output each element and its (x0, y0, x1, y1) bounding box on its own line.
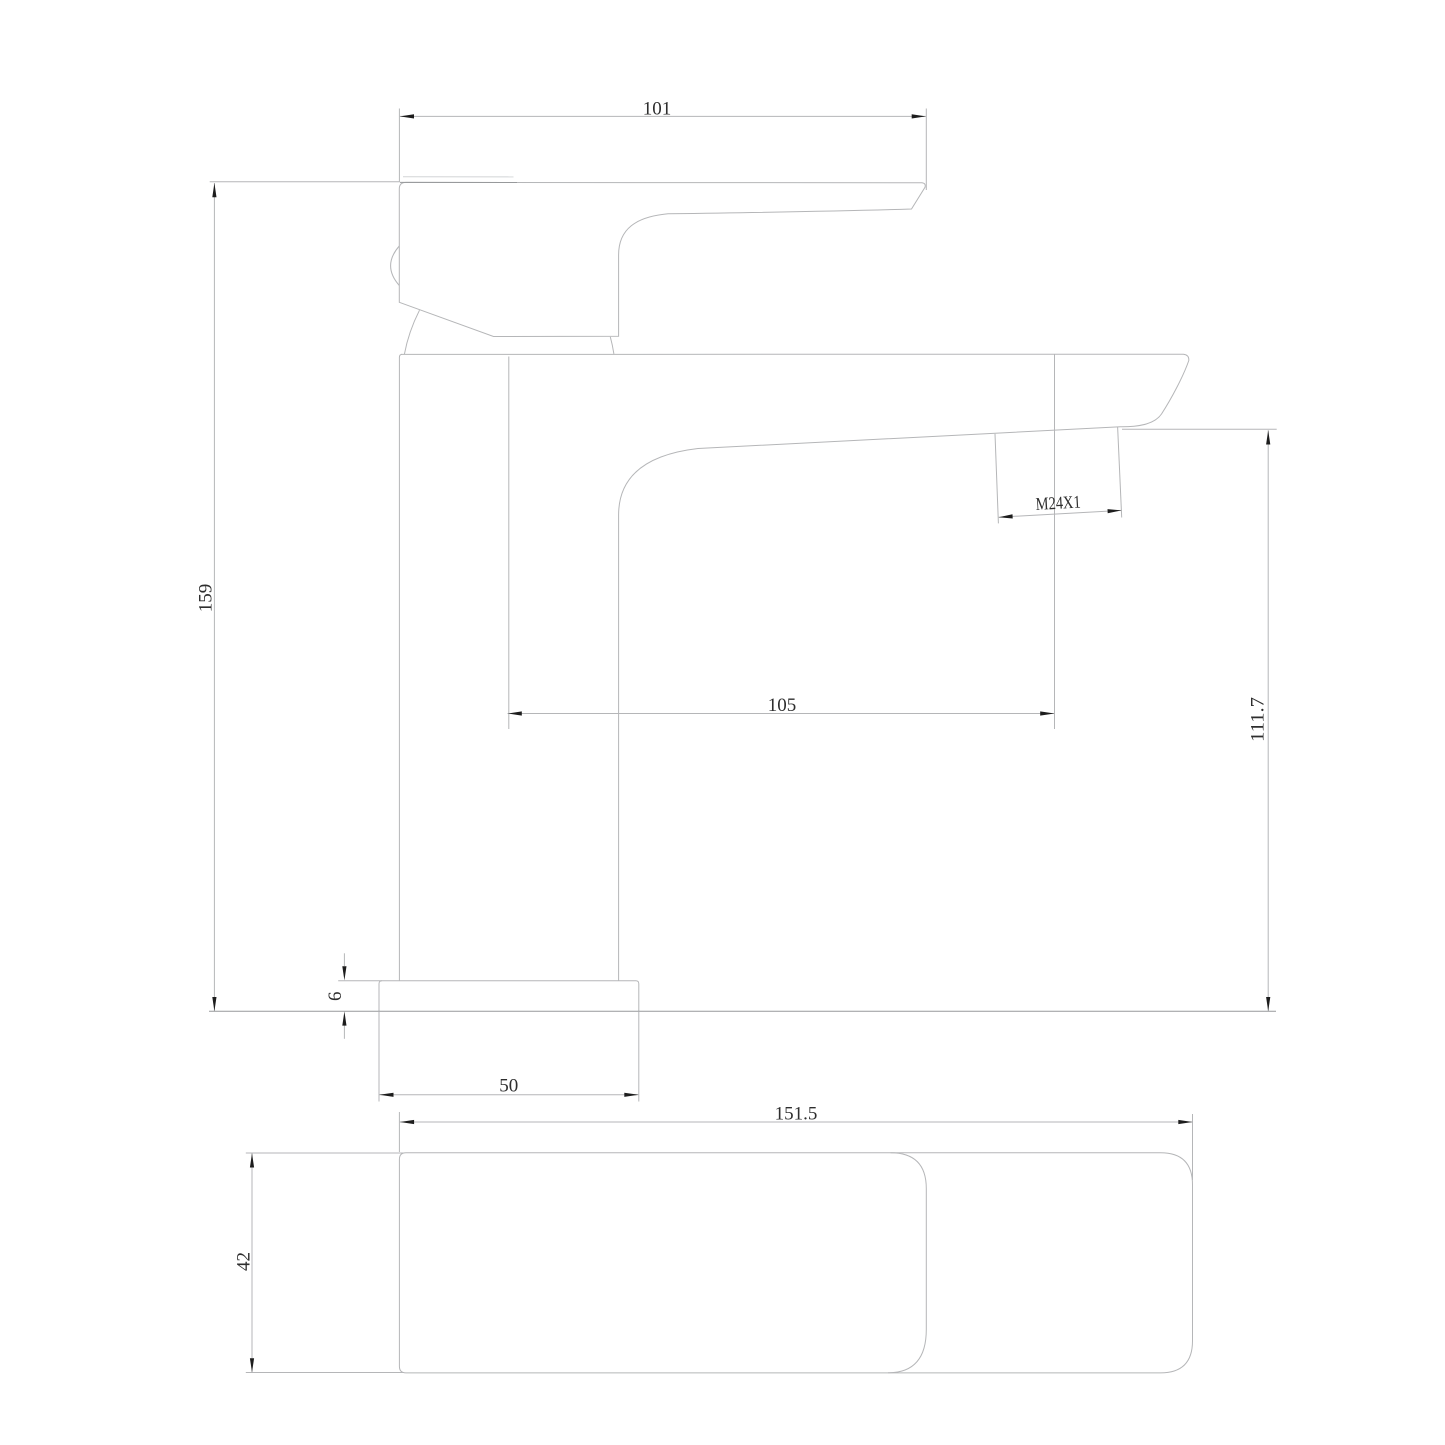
svg-text:6: 6 (325, 992, 346, 1002)
svg-text:M24X1: M24X1 (1035, 492, 1081, 514)
svg-text:151.5: 151.5 (775, 1104, 818, 1125)
svg-text:105: 105 (768, 695, 797, 716)
svg-text:42: 42 (234, 1252, 255, 1271)
svg-text:50: 50 (499, 1075, 518, 1096)
svg-text:111.7: 111.7 (1248, 697, 1269, 742)
svg-text:101: 101 (643, 98, 672, 119)
svg-text:159: 159 (196, 584, 217, 613)
